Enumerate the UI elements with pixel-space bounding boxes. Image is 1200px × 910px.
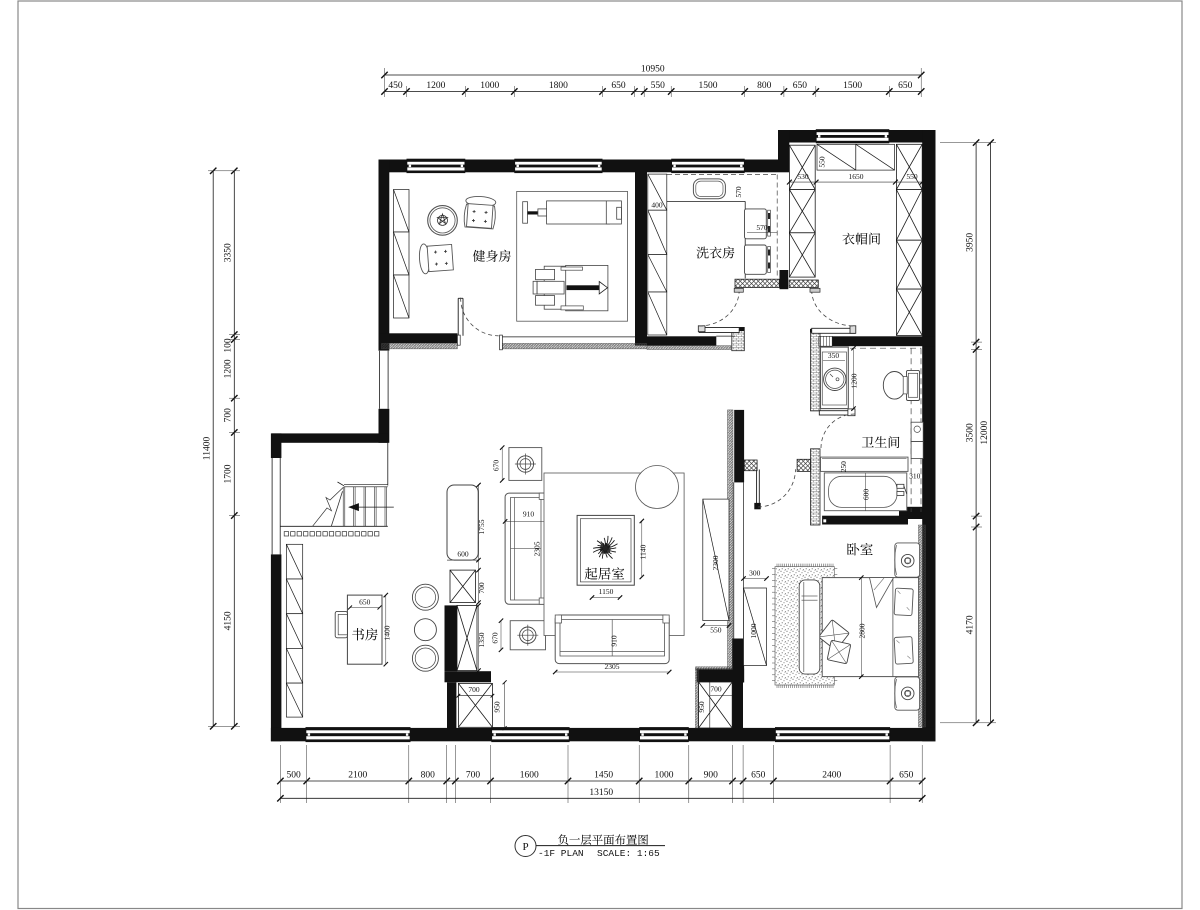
- svg-text:400: 400: [651, 201, 663, 210]
- svg-text:700: 700: [710, 685, 722, 694]
- svg-text:900: 900: [704, 771, 719, 781]
- svg-text:1200: 1200: [850, 373, 859, 388]
- svg-text:350: 350: [828, 351, 840, 360]
- svg-text:1650: 1650: [849, 172, 864, 181]
- svg-text:700: 700: [477, 582, 486, 594]
- svg-text:570: 570: [756, 223, 768, 232]
- svg-text:11400: 11400: [203, 437, 213, 461]
- svg-text:250: 250: [839, 461, 848, 473]
- svg-text:2800: 2800: [857, 623, 866, 638]
- svg-text:-1F PLAN: -1F PLAN: [538, 848, 584, 859]
- svg-text:4150: 4150: [224, 611, 234, 630]
- svg-text:1140: 1140: [638, 544, 647, 559]
- svg-text:2400: 2400: [822, 771, 841, 781]
- svg-text:4170: 4170: [965, 615, 975, 634]
- svg-text:650: 650: [793, 81, 808, 91]
- svg-text:700: 700: [468, 685, 480, 694]
- svg-text:650: 650: [359, 598, 371, 607]
- svg-text:1450: 1450: [594, 771, 613, 781]
- svg-text:650: 650: [899, 771, 914, 781]
- svg-text:1755: 1755: [477, 519, 486, 534]
- svg-text:1500: 1500: [843, 81, 862, 91]
- svg-text:1800: 1800: [549, 81, 568, 91]
- svg-text:800: 800: [421, 771, 436, 781]
- svg-text:800: 800: [757, 81, 772, 91]
- svg-text:600: 600: [862, 489, 871, 501]
- svg-text:530: 530: [797, 172, 809, 181]
- svg-text:550: 550: [651, 81, 666, 91]
- svg-text:550: 550: [710, 626, 722, 635]
- svg-text:910: 910: [610, 635, 619, 647]
- svg-text:12000: 12000: [980, 421, 990, 445]
- svg-text:3350: 3350: [224, 243, 234, 262]
- svg-text:1000: 1000: [655, 771, 674, 781]
- svg-text:1400: 1400: [382, 625, 391, 640]
- svg-text:1000: 1000: [480, 81, 499, 91]
- svg-text:570: 570: [734, 186, 743, 198]
- svg-text:700: 700: [466, 771, 481, 781]
- svg-text:1150: 1150: [599, 587, 614, 596]
- svg-text:600: 600: [457, 550, 469, 559]
- svg-text:700: 700: [224, 408, 234, 423]
- svg-text:650: 650: [898, 81, 913, 91]
- svg-text:100: 100: [224, 338, 234, 353]
- svg-text:1350: 1350: [477, 632, 486, 647]
- svg-text:1200: 1200: [224, 359, 234, 378]
- svg-text:1200: 1200: [426, 81, 445, 91]
- svg-text:P: P: [522, 841, 528, 853]
- svg-text:1600: 1600: [520, 771, 539, 781]
- svg-text:500: 500: [286, 771, 301, 781]
- svg-text:3500: 3500: [965, 423, 975, 442]
- svg-text:670: 670: [491, 632, 500, 644]
- svg-text:2300: 2300: [711, 555, 720, 570]
- svg-text:2305: 2305: [605, 662, 620, 671]
- svg-text:450: 450: [388, 81, 403, 91]
- svg-text:2100: 2100: [348, 771, 367, 781]
- svg-text:550: 550: [818, 156, 827, 168]
- svg-text:300: 300: [749, 569, 761, 578]
- svg-text:310: 310: [909, 472, 921, 481]
- svg-text:950: 950: [697, 701, 706, 713]
- svg-text:910: 910: [523, 510, 535, 519]
- svg-text:2305: 2305: [533, 541, 542, 556]
- svg-text:SCALE: 1:65: SCALE: 1:65: [597, 848, 660, 859]
- svg-text:650: 650: [611, 81, 626, 91]
- svg-text:13150: 13150: [589, 788, 613, 798]
- svg-text:3950: 3950: [965, 233, 975, 252]
- svg-text:650: 650: [751, 771, 766, 781]
- svg-text:1500: 1500: [699, 81, 718, 91]
- svg-text:1000: 1000: [749, 623, 758, 638]
- svg-text:1700: 1700: [224, 464, 234, 483]
- svg-text:550: 550: [906, 172, 918, 181]
- svg-text:670: 670: [492, 460, 501, 472]
- svg-text:950: 950: [493, 701, 502, 713]
- svg-text:10950: 10950: [641, 65, 665, 75]
